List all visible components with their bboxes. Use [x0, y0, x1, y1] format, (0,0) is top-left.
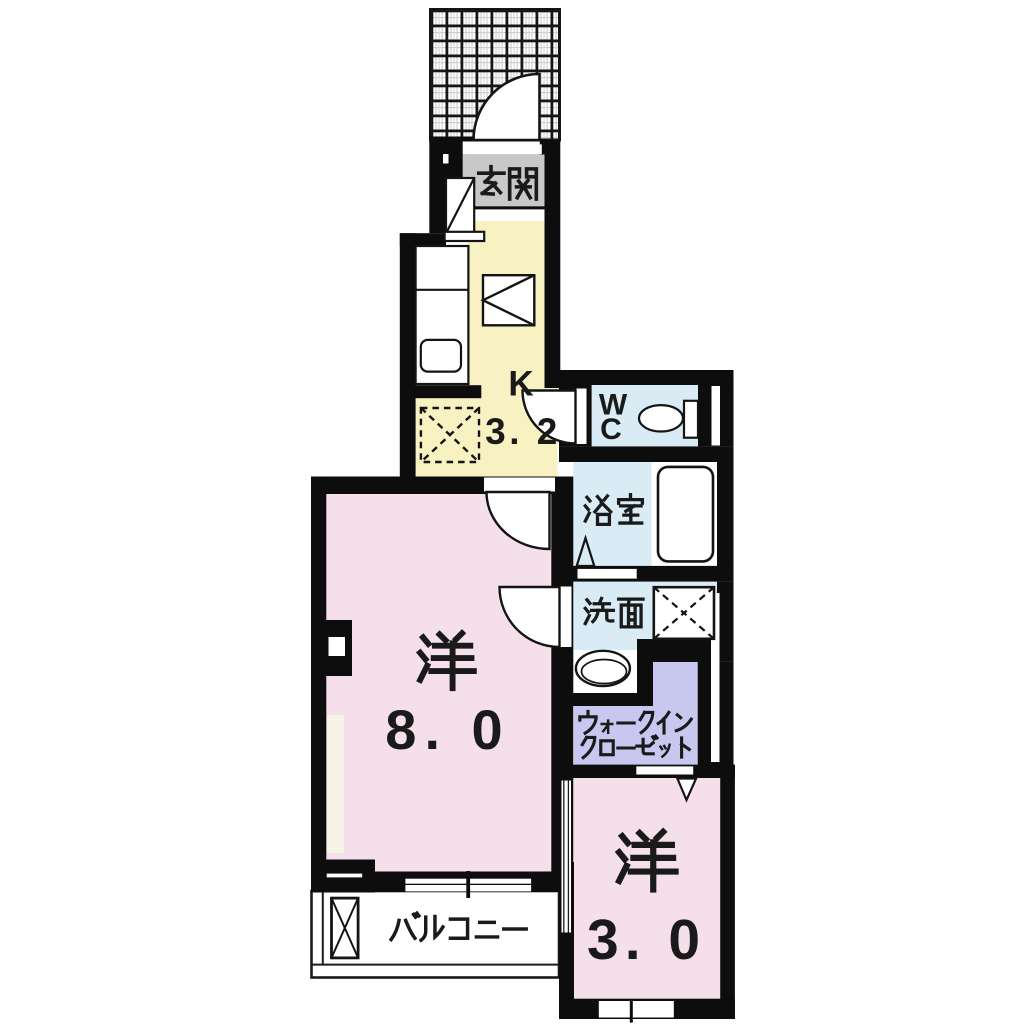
svg-text:3. 0: 3. 0 [587, 908, 706, 972]
svg-text:3. 2: 3. 2 [485, 411, 561, 452]
svg-text:K: K [508, 365, 533, 404]
svg-text:C: C [600, 413, 622, 446]
svg-text:8. 0: 8. 0 [385, 698, 510, 761]
